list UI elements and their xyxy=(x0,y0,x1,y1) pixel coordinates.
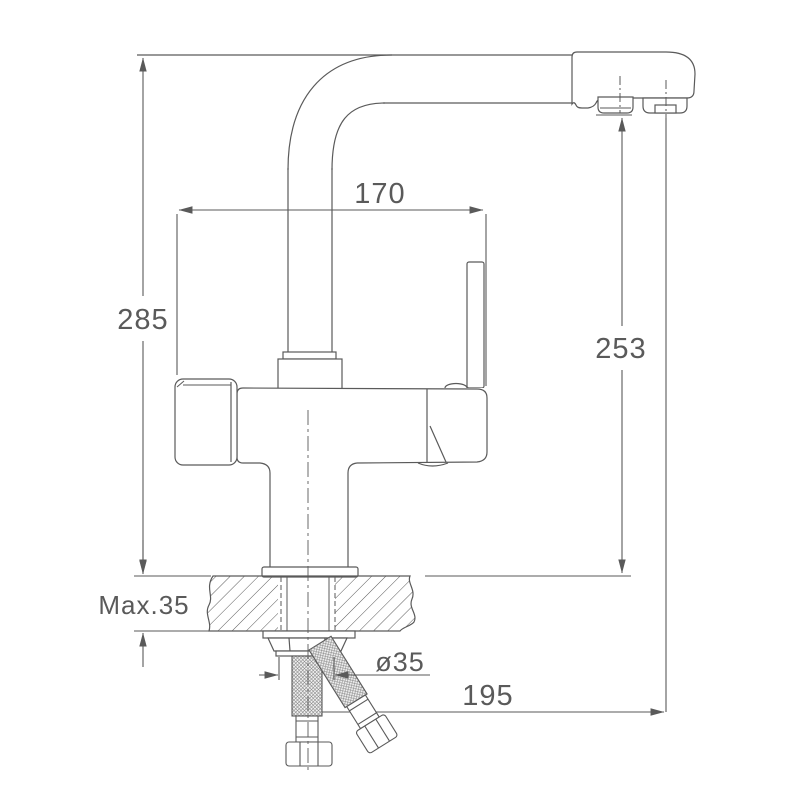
faucet-dimension-drawing: 170 285 253 Max.35 ø35 195 xyxy=(0,0,800,800)
knob-handle xyxy=(175,379,237,465)
braided-hose-vertical xyxy=(292,656,322,716)
dimension-label-spout-width: 170 xyxy=(354,178,405,210)
faucet-spout xyxy=(137,52,695,352)
dimension-label-spout-reach: 195 xyxy=(462,680,513,712)
body-neck xyxy=(278,359,342,392)
technical-drawing-canvas: 170 285 253 Max.35 ø35 195 xyxy=(0,0,800,800)
hose-fitting xyxy=(296,716,318,742)
dimension-label-hole-diameter: ø35 xyxy=(375,647,425,677)
riser-collar xyxy=(283,352,336,359)
dimension-label-outlet-height: 253 xyxy=(595,333,646,365)
lever-handle xyxy=(467,262,484,388)
filtered-water-outlet xyxy=(598,97,633,113)
dimension-label-overall-height: 285 xyxy=(117,304,168,336)
hose-nut xyxy=(286,742,332,766)
mounting-washer xyxy=(263,631,355,638)
dimension-label-counter-thickness: Max.35 xyxy=(98,590,189,620)
faucet-body xyxy=(175,262,487,577)
